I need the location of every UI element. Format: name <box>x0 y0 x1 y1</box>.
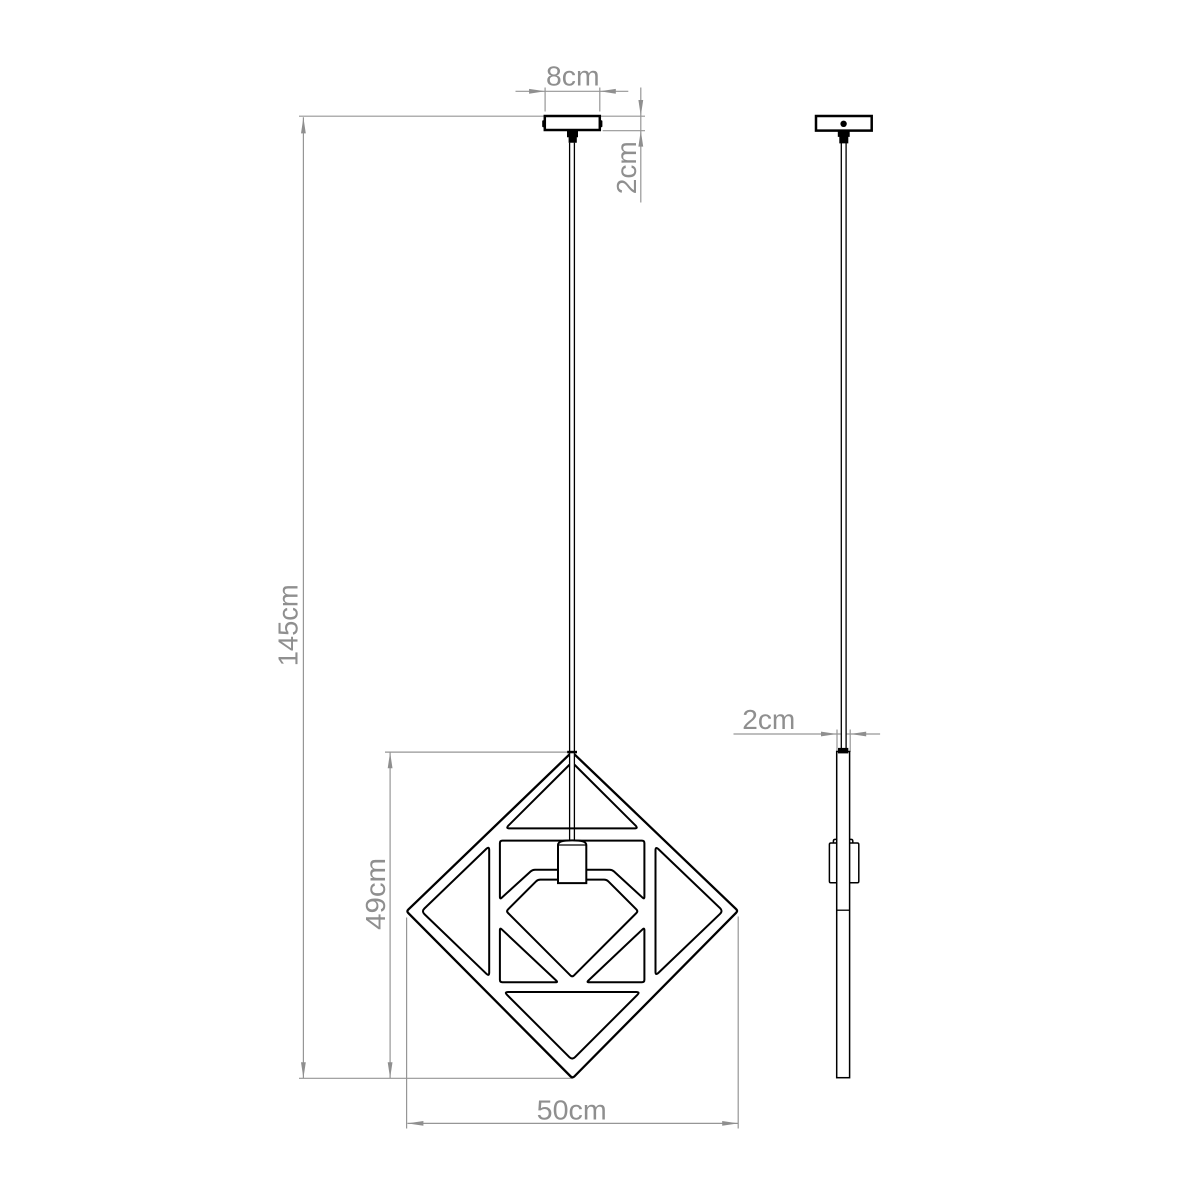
svg-text:49cm: 49cm <box>360 858 391 930</box>
svg-text:8cm: 8cm <box>546 60 600 91</box>
svg-text:145cm: 145cm <box>272 584 303 666</box>
svg-text:2cm: 2cm <box>611 141 642 194</box>
svg-text:2cm: 2cm <box>742 704 795 735</box>
svg-text:50cm: 50cm <box>537 1095 607 1126</box>
